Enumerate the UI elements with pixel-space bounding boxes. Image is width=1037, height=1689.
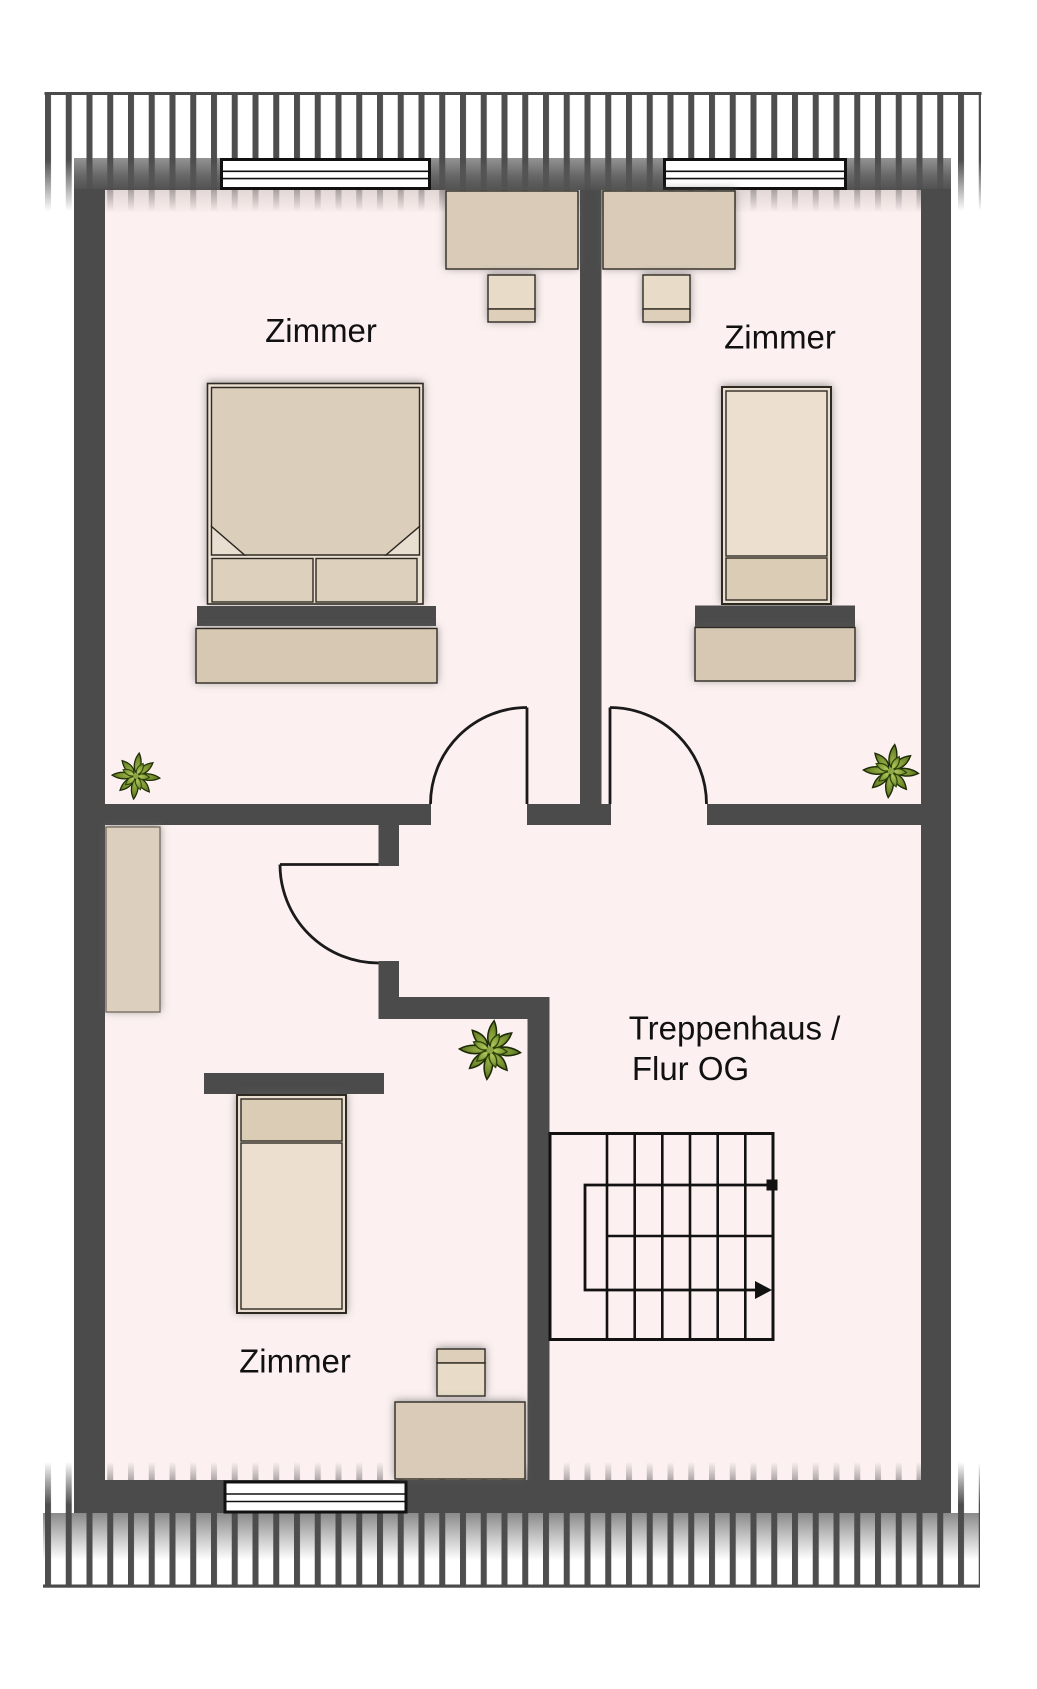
svg-text:Zimmer: Zimmer: [239, 1343, 351, 1380]
svg-text:Treppenhaus /: Treppenhaus /: [629, 1010, 841, 1047]
svg-text:Zimmer: Zimmer: [724, 319, 836, 356]
svg-text:Flur OG: Flur OG: [632, 1050, 749, 1087]
svg-text:Zimmer: Zimmer: [265, 312, 377, 349]
